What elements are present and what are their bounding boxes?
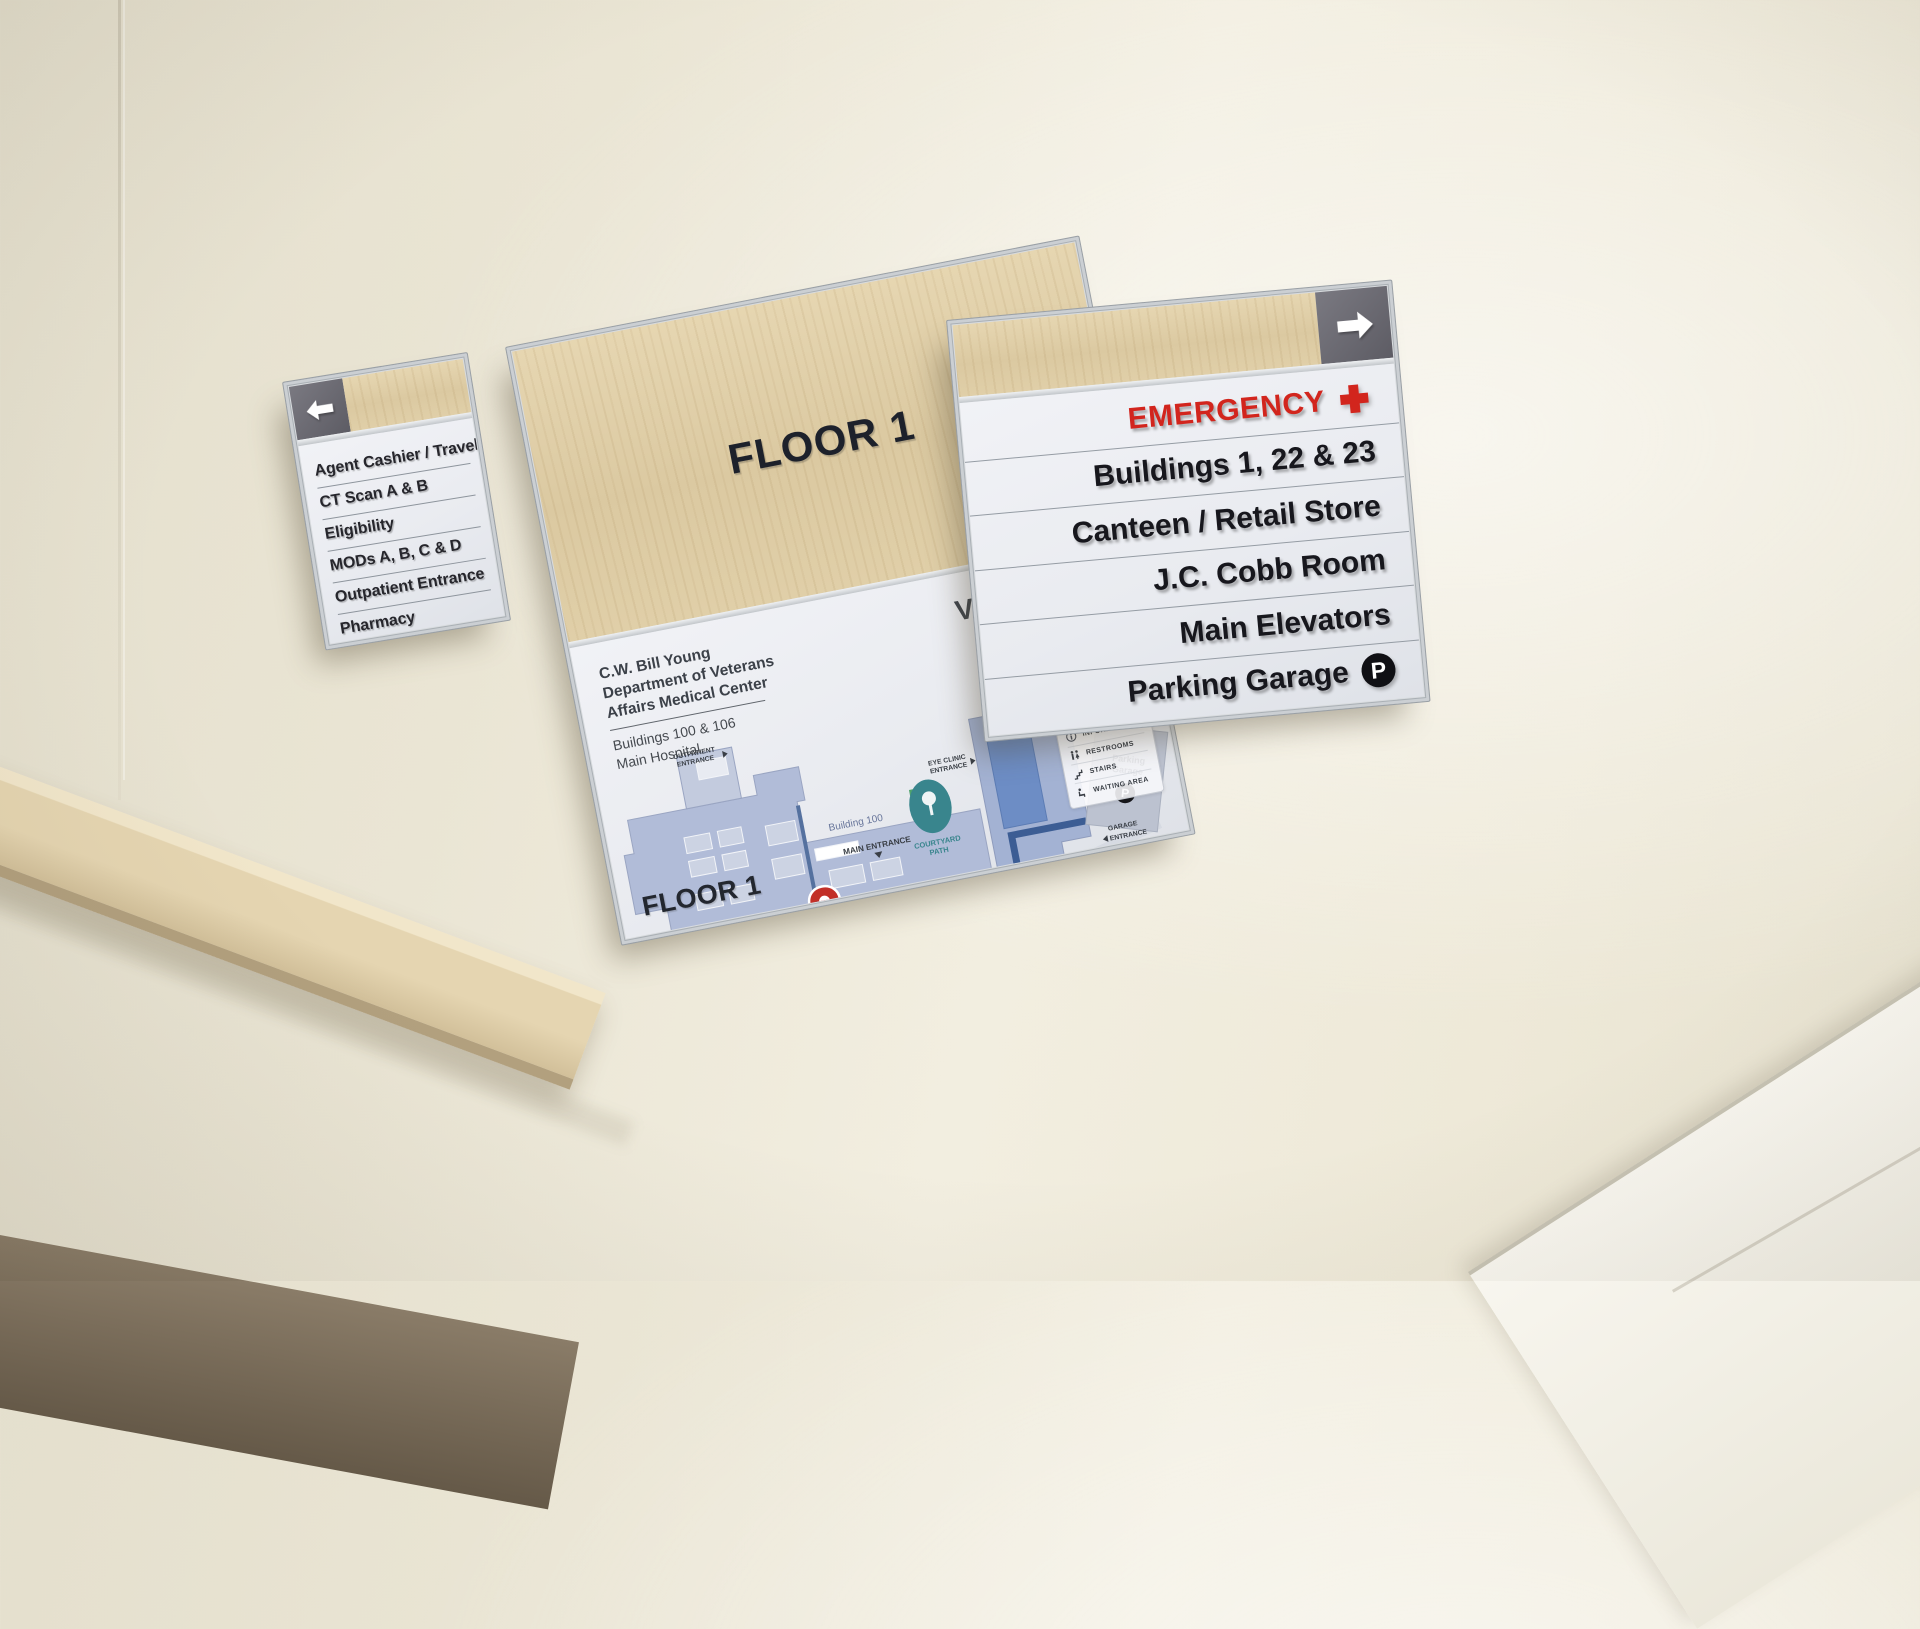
stairs-icon xyxy=(1072,767,1085,780)
row-label: Parking Garage xyxy=(1126,656,1350,710)
legend-label: WAITING AREA xyxy=(1093,776,1150,794)
hospital-hallway-photo: { "left_sign": { "arrow_icon": "left-arr… xyxy=(0,0,1920,1281)
parking-letter: P xyxy=(1370,656,1388,684)
svg-text:E: E xyxy=(1176,909,1184,920)
restrooms-icon xyxy=(1068,749,1081,762)
right-arrow-icon xyxy=(1315,286,1393,364)
sign-panel: EMERGENCY Buildings 1, 22 & 23 Canteen /… xyxy=(960,364,1424,736)
row-label: Main Elevators xyxy=(1178,598,1392,651)
legend-label: STAIRS xyxy=(1089,763,1117,775)
directory-list: EMERGENCY Buildings 1, 22 & 23 Canteen /… xyxy=(960,364,1424,733)
wall-seam-highlight xyxy=(123,0,125,780)
svg-text:N: N xyxy=(1136,882,1144,893)
row-label: J.C. Cobb Room xyxy=(1152,543,1387,598)
left-arrow-icon xyxy=(289,378,351,440)
wall-seam xyxy=(118,0,121,800)
floor-edge xyxy=(0,1222,579,1509)
svg-text:EAST: EAST xyxy=(1064,904,1084,914)
parking-badge-icon: P xyxy=(1360,652,1397,689)
right-directory-sign: EMERGENCY Buildings 1, 22 & 23 Canteen /… xyxy=(946,279,1431,742)
sign-frame: Agent Cashier / Travel CT Scan A & B Eli… xyxy=(282,352,511,651)
sign-frame: EMERGENCY Buildings 1, 22 & 23 Canteen /… xyxy=(946,279,1431,742)
directory-list: Agent Cashier / Travel CT Scan A & B Eli… xyxy=(298,418,504,644)
svg-text:W: W xyxy=(1108,922,1119,934)
emergency-cross-icon xyxy=(1336,381,1372,417)
left-directory-sign: Agent Cashier / Travel CT Scan A & B Eli… xyxy=(282,352,511,651)
sign-panel: Agent Cashier / Travel CT Scan A & B Eli… xyxy=(298,418,504,644)
svg-text:ENTRANCE: ENTRANCE xyxy=(1066,909,1105,923)
compass-rose: N E S W xyxy=(1101,876,1188,939)
waiting-area-icon xyxy=(1076,786,1089,799)
row-label: EMERGENCY xyxy=(1126,385,1326,437)
